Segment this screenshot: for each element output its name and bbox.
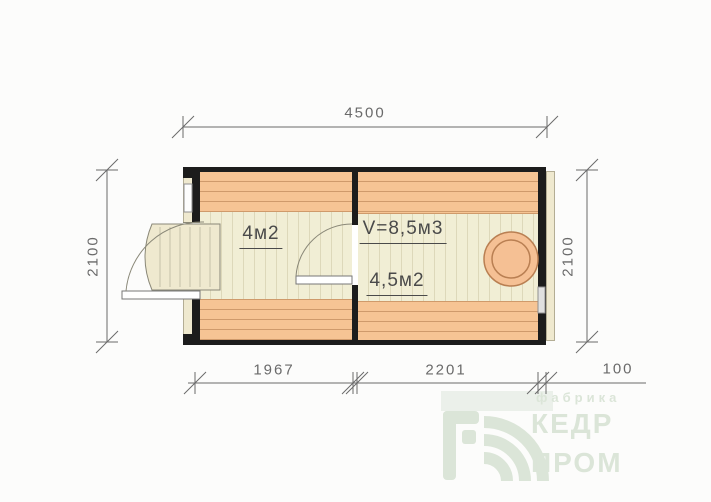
left-wall-lower [192,293,200,340]
dim-bottom-left-label: 1967 [253,362,294,379]
room-left-bench-bottom [200,299,352,340]
left-wall-top-corner [183,167,200,178]
interior-door-opening [352,225,358,285]
partition-wall-lower [352,285,358,340]
left-wall-bottom-corner [183,334,200,345]
dim-height-right-label: 2100 [560,235,577,276]
room-left-bench-top [200,172,352,212]
entrance-door-opening [183,222,200,293]
room-right-area-label: 4,5м2 [366,270,427,296]
left-wall-upper [192,172,200,222]
top-wall [183,167,546,172]
room-right-bench-bottom [358,301,538,340]
room-left-area-label: 4м2 [239,223,282,249]
partition-wall-upper [352,172,358,225]
logo-word-kedr: КЕДР [531,410,613,438]
dim-bottom-right-label: 100 [602,361,633,378]
logo-word-prom: ПРОМ [531,449,623,477]
floor-plan-canvas: 4500 2100 2100 1967 2201 100 4м2 V=8,5м3… [0,0,711,502]
dim-height-left-label: 2100 [85,235,102,276]
room-right-bench-top [358,172,538,214]
room-right-volume-label: V=8,5м3 [360,218,447,244]
dimension-right [576,159,598,353]
bottom-wall [183,340,546,345]
right-wall-overhang [546,171,555,341]
logo-tagline: фабрика [536,390,620,405]
dim-bottom-middle-label: 2201 [425,362,466,379]
right-wall [538,172,546,340]
dim-width-label: 4500 [344,105,385,122]
